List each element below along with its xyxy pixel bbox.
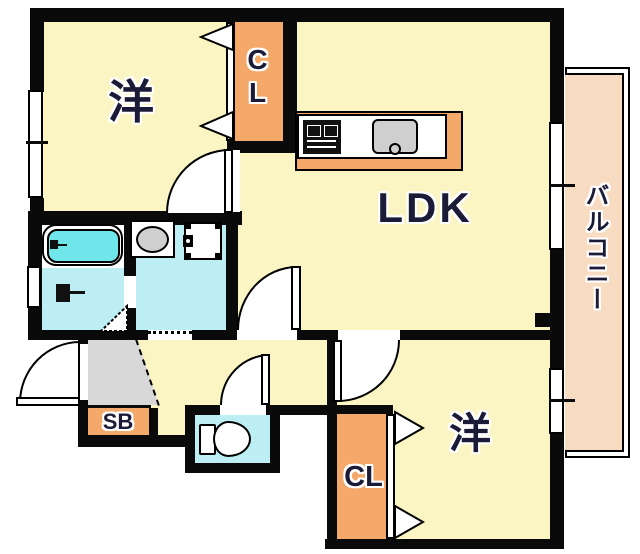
wall-shoebox-right (149, 408, 158, 446)
bedroom1-door-leaf (224, 149, 233, 213)
window-bathroom (27, 266, 41, 308)
bedroom2-door-leaf (333, 340, 342, 402)
closet1-bifold-icon (196, 20, 236, 144)
wall-top (30, 8, 564, 22)
shower-icon (56, 284, 70, 302)
bathroom-bifold-icon (98, 303, 130, 333)
wall-bedroom2-bottom (325, 539, 564, 549)
closet2-bifold-icon (393, 408, 427, 542)
window-ldk-mullion (549, 184, 575, 187)
closet-1-label: CL (241, 44, 273, 110)
hallway-floor-notch (156, 405, 186, 437)
wall-hall-bottom (275, 405, 332, 415)
wall-shoebox-top-line (85, 405, 151, 408)
washer-pan-icon (184, 222, 222, 260)
doorway-toilet (220, 405, 266, 415)
wall-left-upper (30, 8, 44, 92)
doorway-bedroom2 (338, 330, 400, 340)
bedroom-1-label: 洋 (96, 66, 166, 132)
window-bedroom1-left (28, 90, 43, 198)
vanity-sink-icon (136, 226, 169, 253)
doorway-ldk (237, 330, 297, 340)
window-bedroom1-mullion (26, 141, 48, 144)
shoe-box-label: SB (95, 409, 141, 435)
closet-2-label: CL (336, 461, 391, 494)
toilet-door-leaf (261, 354, 270, 405)
ldk-label: LDK (355, 184, 495, 232)
wall-right (550, 8, 564, 549)
bedroom-2-label: 洋 (435, 400, 505, 461)
kitchen-faucet-icon (389, 143, 401, 155)
bathtub-icon (42, 224, 123, 266)
wall-pillar (535, 313, 553, 327)
ldk-door-leaf (291, 266, 301, 330)
wall-toilet-bottom (185, 463, 280, 473)
wall-closet2-top (327, 405, 393, 414)
window-bedroom2-mullion (549, 399, 575, 402)
stove-icon (303, 120, 341, 154)
entry-door-swing (19, 341, 80, 403)
wall-genkan-bottom (78, 435, 186, 447)
washroom-sliding-door (148, 331, 192, 334)
floor-plan: 洋 CL LDK バルコニー 洋 CL SB (0, 0, 640, 554)
balcony-label: バルコニー (581, 183, 607, 313)
shower-arm-icon (70, 291, 85, 294)
entry-door-leaf (16, 397, 80, 406)
wall-wash-ldk (226, 225, 238, 332)
